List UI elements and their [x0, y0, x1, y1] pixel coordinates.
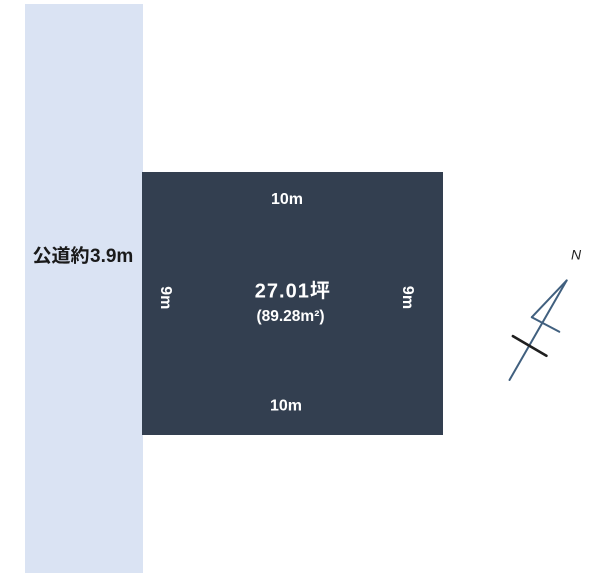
svg-text:10m: 10m: [271, 191, 303, 208]
svg-text:3.9m: 3.9m: [90, 246, 133, 267]
svg-text:9m: 9m: [399, 286, 416, 309]
svg-text:9m: 9m: [157, 286, 174, 309]
svg-text:27.01: 27.01: [255, 281, 310, 303]
svg-text:10m: 10m: [270, 397, 302, 414]
svg-text:(89.28m²): (89.28m²): [256, 308, 324, 325]
svg-text:N: N: [571, 246, 582, 262]
